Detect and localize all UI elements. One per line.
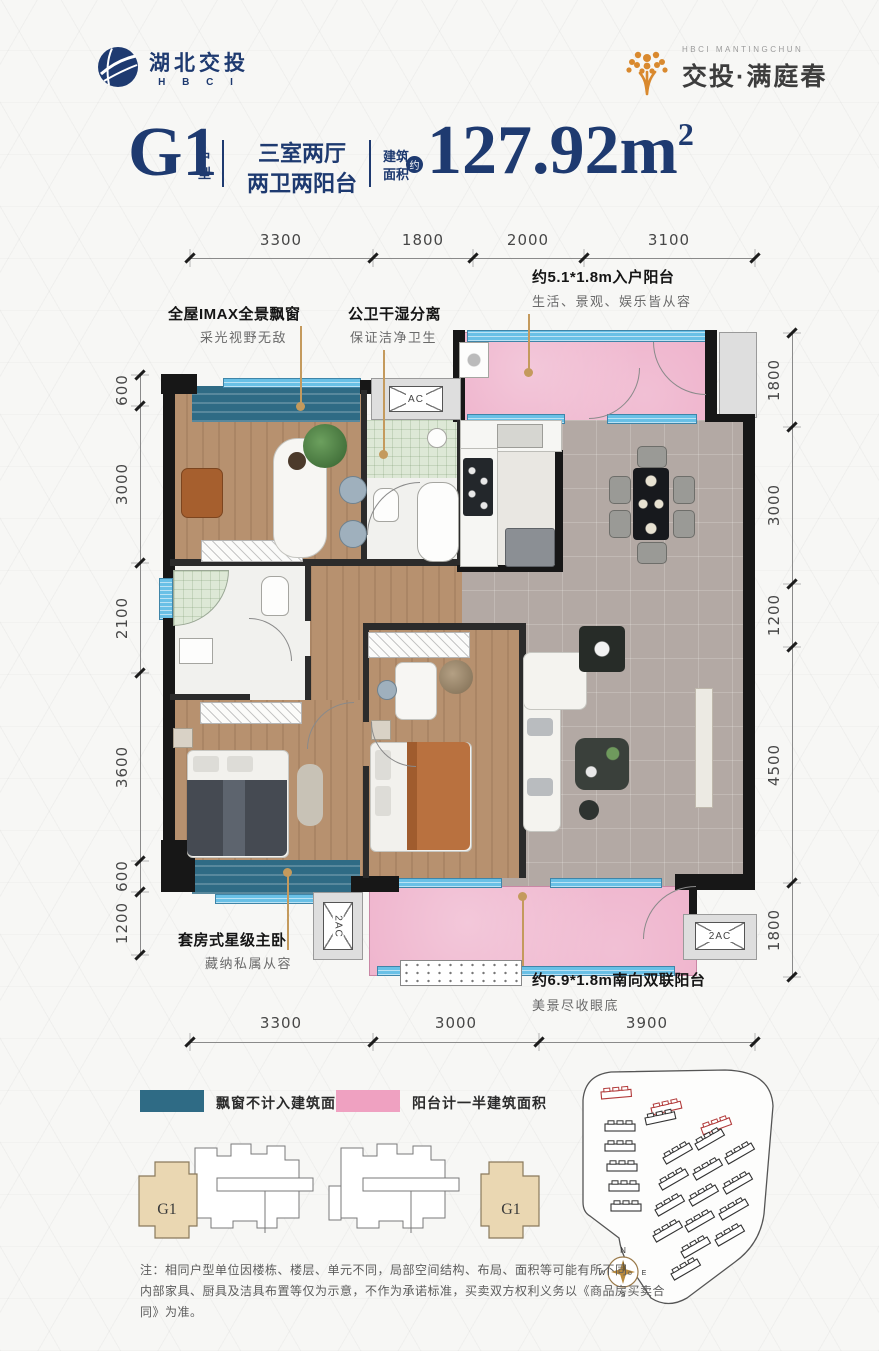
wall-segment bbox=[163, 378, 175, 578]
layout-summary: 三室两厅 两卫两阳台 bbox=[238, 139, 366, 198]
callout-title: 公卫干湿分离 bbox=[348, 303, 441, 324]
callout-title: 约6.9*1.8m南向双联阳台 bbox=[532, 969, 705, 990]
dim-label: 600 bbox=[113, 374, 131, 406]
bay-window-south bbox=[192, 860, 360, 894]
hbci-globe-icon bbox=[95, 44, 141, 90]
dim-label: 4500 bbox=[765, 744, 783, 786]
callout-desc: 采光视野无敌 bbox=[200, 327, 287, 346]
dining-table bbox=[633, 468, 669, 540]
pillow bbox=[227, 756, 253, 772]
callout-leader bbox=[528, 314, 530, 372]
floorplan-poster: { "brand": { "left_logo": {"name": "湖北交投… bbox=[0, 0, 879, 1351]
floor-plan: AC 2AC 2AC bbox=[155, 330, 755, 992]
window-master-bath bbox=[159, 578, 173, 620]
legend-label: 飘窗不计入建筑面积 bbox=[216, 1093, 351, 1113]
disclaimer: 注：相同户型单位因楼栋、楼层、单元不同，局部空间结构、布局、面积等可能有所不同。… bbox=[140, 1260, 670, 1323]
desk-decor bbox=[288, 452, 306, 470]
coffee-table bbox=[575, 738, 629, 790]
brand-left-sub: H B C I bbox=[149, 77, 249, 88]
dining-chair bbox=[673, 510, 695, 538]
dim-label: 1200 bbox=[765, 594, 783, 636]
wall-segment bbox=[305, 656, 311, 700]
callout-title: 约5.1*1.8m入户阳台 bbox=[532, 266, 674, 287]
wall-segment bbox=[555, 450, 563, 568]
sofa-cushion bbox=[527, 778, 553, 796]
area-value: 127.92m2 bbox=[427, 116, 694, 186]
dim-label: 1800 bbox=[765, 909, 783, 951]
callout-leader bbox=[287, 876, 289, 950]
ac-unit-north: AC bbox=[389, 386, 443, 412]
disclaimer-line1: 注：相同户型单位因楼栋、楼层、单元不同，局部空间结构、布局、面积等可能有所不同。 bbox=[140, 1260, 670, 1281]
dim-label: 3000 bbox=[765, 484, 783, 526]
bedroom2-wardrobe bbox=[368, 632, 470, 658]
callout-desc: 生活、景观、娱乐皆从容 bbox=[532, 291, 692, 310]
unit-suffix: 户型 bbox=[198, 150, 213, 183]
dim-label: 1800 bbox=[765, 359, 783, 401]
washer bbox=[459, 342, 489, 378]
dim-label: 1800 bbox=[402, 231, 444, 249]
callout-dot bbox=[296, 402, 305, 411]
master-wardrobe bbox=[200, 702, 302, 724]
brand-left-name: 湖北交投 bbox=[149, 47, 249, 77]
title-divider bbox=[222, 140, 224, 187]
stool bbox=[579, 800, 599, 820]
dim-label: 3100 bbox=[648, 231, 690, 249]
ac-label: 2AC bbox=[332, 913, 343, 939]
dining-chair bbox=[637, 446, 667, 468]
key-plan-unit-right-shape bbox=[481, 1162, 539, 1238]
balcony-entrance-glazing bbox=[467, 330, 707, 342]
layout-line1: 三室两厅 bbox=[238, 139, 366, 169]
ac-unit-sw: 2AC bbox=[323, 902, 353, 950]
callout-leader bbox=[522, 900, 524, 966]
wall-segment bbox=[305, 565, 311, 621]
bath1-sink bbox=[427, 428, 447, 448]
study-chair bbox=[181, 468, 223, 518]
nightstand bbox=[173, 728, 193, 748]
wall-segment bbox=[363, 766, 369, 878]
blanket-fold bbox=[223, 780, 245, 856]
key-plan-unit-left-shape bbox=[139, 1162, 197, 1238]
sofa-chaise bbox=[523, 652, 587, 710]
master-sink bbox=[179, 638, 213, 664]
dim-label: 3600 bbox=[113, 746, 131, 788]
dim-label: 3900 bbox=[626, 1014, 668, 1032]
dim-label: 2000 bbox=[507, 231, 549, 249]
key-plan-unit-right-label: G1 bbox=[501, 1201, 521, 1218]
dim-label: 3000 bbox=[435, 1014, 477, 1032]
round-chair bbox=[439, 660, 473, 694]
window-bedroom2-balcony bbox=[390, 878, 502, 888]
ac-unit-se: 2AC bbox=[695, 922, 745, 950]
area-number: 127.92m bbox=[427, 112, 678, 189]
dim-label: 3300 bbox=[260, 1014, 302, 1032]
dim-label: 2100 bbox=[113, 597, 131, 639]
wall-segment bbox=[363, 623, 526, 630]
callout-dot bbox=[524, 368, 533, 377]
disclaimer-line2: 内部家具、厨具及洁具布置等仅为示意，不作为承诺标准，买卖双方权利义务以《商品房买… bbox=[140, 1281, 670, 1323]
dim-label: 600 bbox=[113, 860, 131, 892]
wall-segment bbox=[705, 330, 717, 422]
wall-segment bbox=[743, 418, 755, 886]
bath1-tub bbox=[417, 482, 459, 562]
callout-leader bbox=[383, 350, 385, 454]
bedside-rug bbox=[297, 764, 323, 826]
brand-left: 湖北交投 H B C I bbox=[95, 44, 249, 90]
callout-title: 全屋IMAX全景飘窗 bbox=[168, 303, 301, 324]
area-sup: 2 bbox=[678, 116, 694, 152]
legend-swatch-balcony bbox=[336, 1090, 400, 1112]
dining-chair bbox=[609, 510, 631, 538]
stool bbox=[339, 520, 367, 548]
callout-desc: 美景尽收眼底 bbox=[532, 995, 619, 1014]
dim-label: 3300 bbox=[260, 231, 302, 249]
callout-desc: 藏纳私属从容 bbox=[205, 953, 292, 972]
bedroom2-desk bbox=[395, 662, 437, 720]
wall-segment bbox=[351, 876, 399, 892]
dining-chair bbox=[637, 542, 667, 564]
pillow bbox=[193, 756, 219, 772]
layout-line2: 两卫两阳台 bbox=[238, 169, 366, 199]
brand-right: HBCI MANTINGCHUN 交投·满庭春 bbox=[622, 42, 827, 96]
fridge bbox=[505, 528, 555, 567]
tv-console bbox=[695, 688, 713, 808]
ac-label: AC bbox=[406, 394, 426, 405]
brand-right-name: 交投·满庭春 bbox=[682, 57, 827, 93]
legend-swatch-bay-window bbox=[140, 1090, 204, 1112]
key-plan-unit-left-label: G1 bbox=[157, 1201, 177, 1218]
compass-n: N bbox=[620, 1246, 626, 1255]
master-toilet bbox=[261, 576, 289, 616]
callout-desc: 保证洁净卫生 bbox=[350, 327, 437, 346]
stool bbox=[339, 476, 367, 504]
kitchen-stove bbox=[463, 458, 493, 516]
drainage-strip bbox=[400, 960, 522, 986]
window-north bbox=[223, 378, 361, 388]
legend-label: 阳台计一半建筑面积 bbox=[412, 1093, 547, 1113]
dim-label: 1200 bbox=[113, 902, 131, 944]
dining-chair bbox=[609, 476, 631, 504]
plant bbox=[303, 424, 347, 468]
side-table bbox=[579, 626, 625, 672]
window-dining bbox=[607, 414, 697, 424]
wall-segment bbox=[170, 694, 250, 700]
bay-window-north bbox=[192, 386, 360, 422]
area-label-line2: 面积 bbox=[383, 166, 409, 184]
window-living-balcony bbox=[550, 878, 662, 888]
callout-dot bbox=[379, 450, 388, 459]
desk-stool bbox=[377, 680, 397, 700]
building-key-plan: G1 G1 bbox=[133, 1128, 545, 1252]
sofa-cushion bbox=[527, 718, 553, 736]
ac-label: 2AC bbox=[707, 931, 733, 942]
brand-right-sub: HBCI MANTINGCHUN bbox=[682, 45, 827, 54]
room-bath1-wet bbox=[365, 420, 460, 478]
equipment-platform-ne bbox=[719, 332, 757, 418]
dim-label: 3000 bbox=[113, 463, 131, 505]
callout-title: 套房式星级主卧 bbox=[178, 929, 287, 950]
approx-badge: 约 bbox=[406, 156, 423, 173]
kitchen-sink bbox=[497, 424, 543, 448]
title-divider-2 bbox=[369, 140, 371, 187]
callout-leader bbox=[300, 326, 302, 406]
mantingchun-tree-icon bbox=[622, 42, 672, 96]
dining-chair bbox=[673, 476, 695, 504]
pillow bbox=[375, 786, 391, 816]
